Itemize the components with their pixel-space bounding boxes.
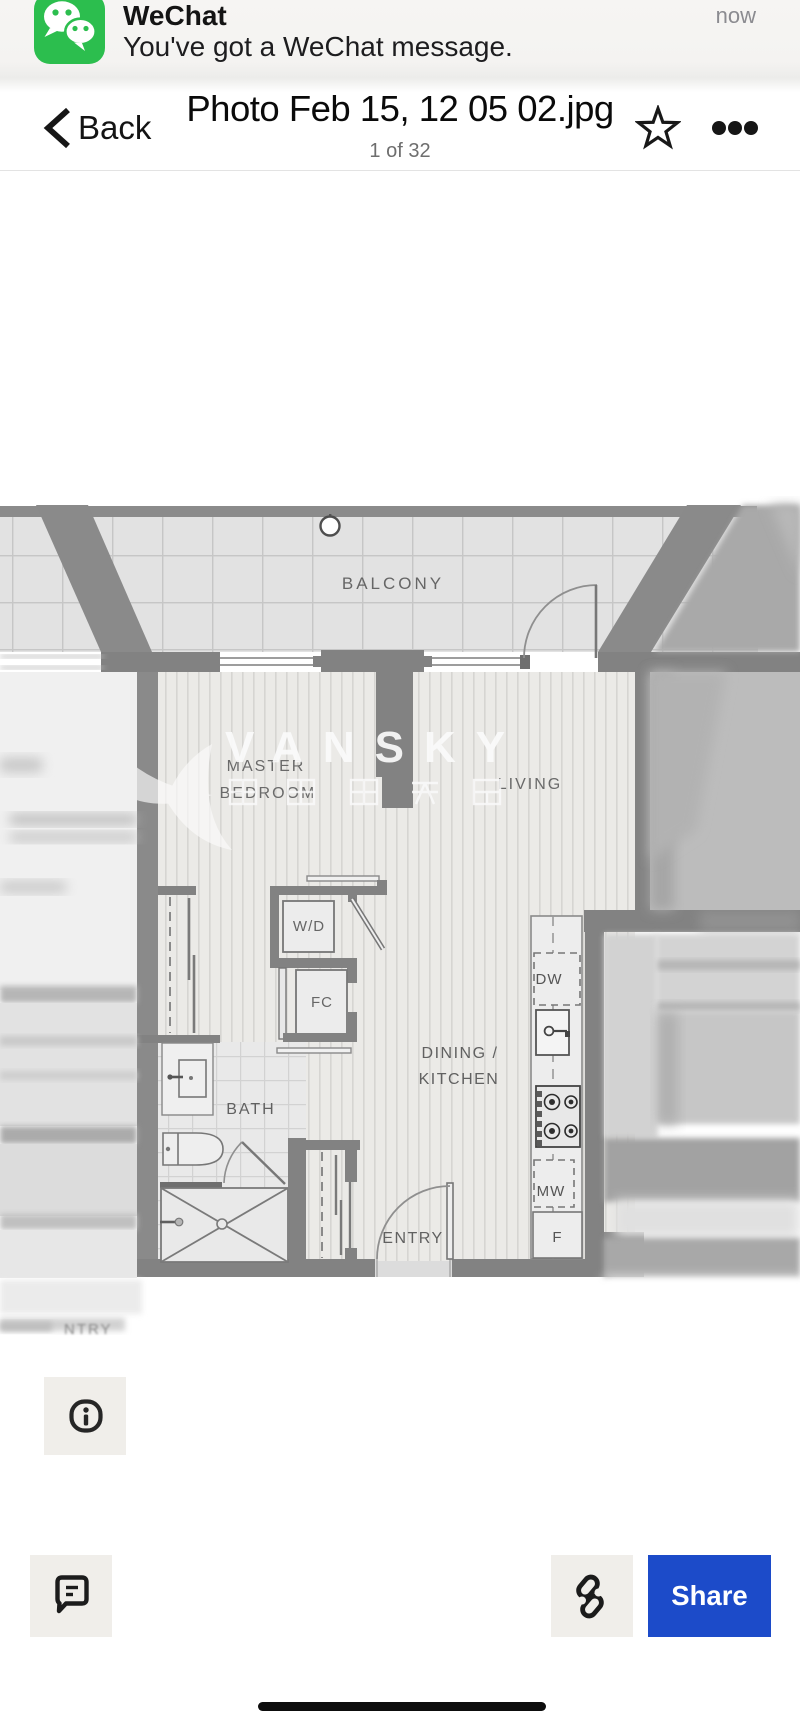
svg-text:NTRY: NTRY [64,1321,113,1336]
svg-text:W/D: W/D [293,918,325,935]
svg-text:F: F [552,1229,561,1246]
svg-text:KITCHEN: KITCHEN [419,1071,500,1088]
svg-text:LIVING: LIVING [498,776,562,793]
svg-text:MW: MW [537,1183,566,1200]
svg-text:VANSKY: VANSKY [225,723,525,772]
svg-text:ENTRY: ENTRY [382,1230,443,1247]
svg-text:FC: FC [311,994,333,1011]
svg-text:BALCONY: BALCONY [342,574,444,593]
svg-text:BATH: BATH [226,1101,275,1118]
svg-text:DINING /: DINING / [422,1045,499,1062]
svg-text:DW: DW [536,971,563,988]
